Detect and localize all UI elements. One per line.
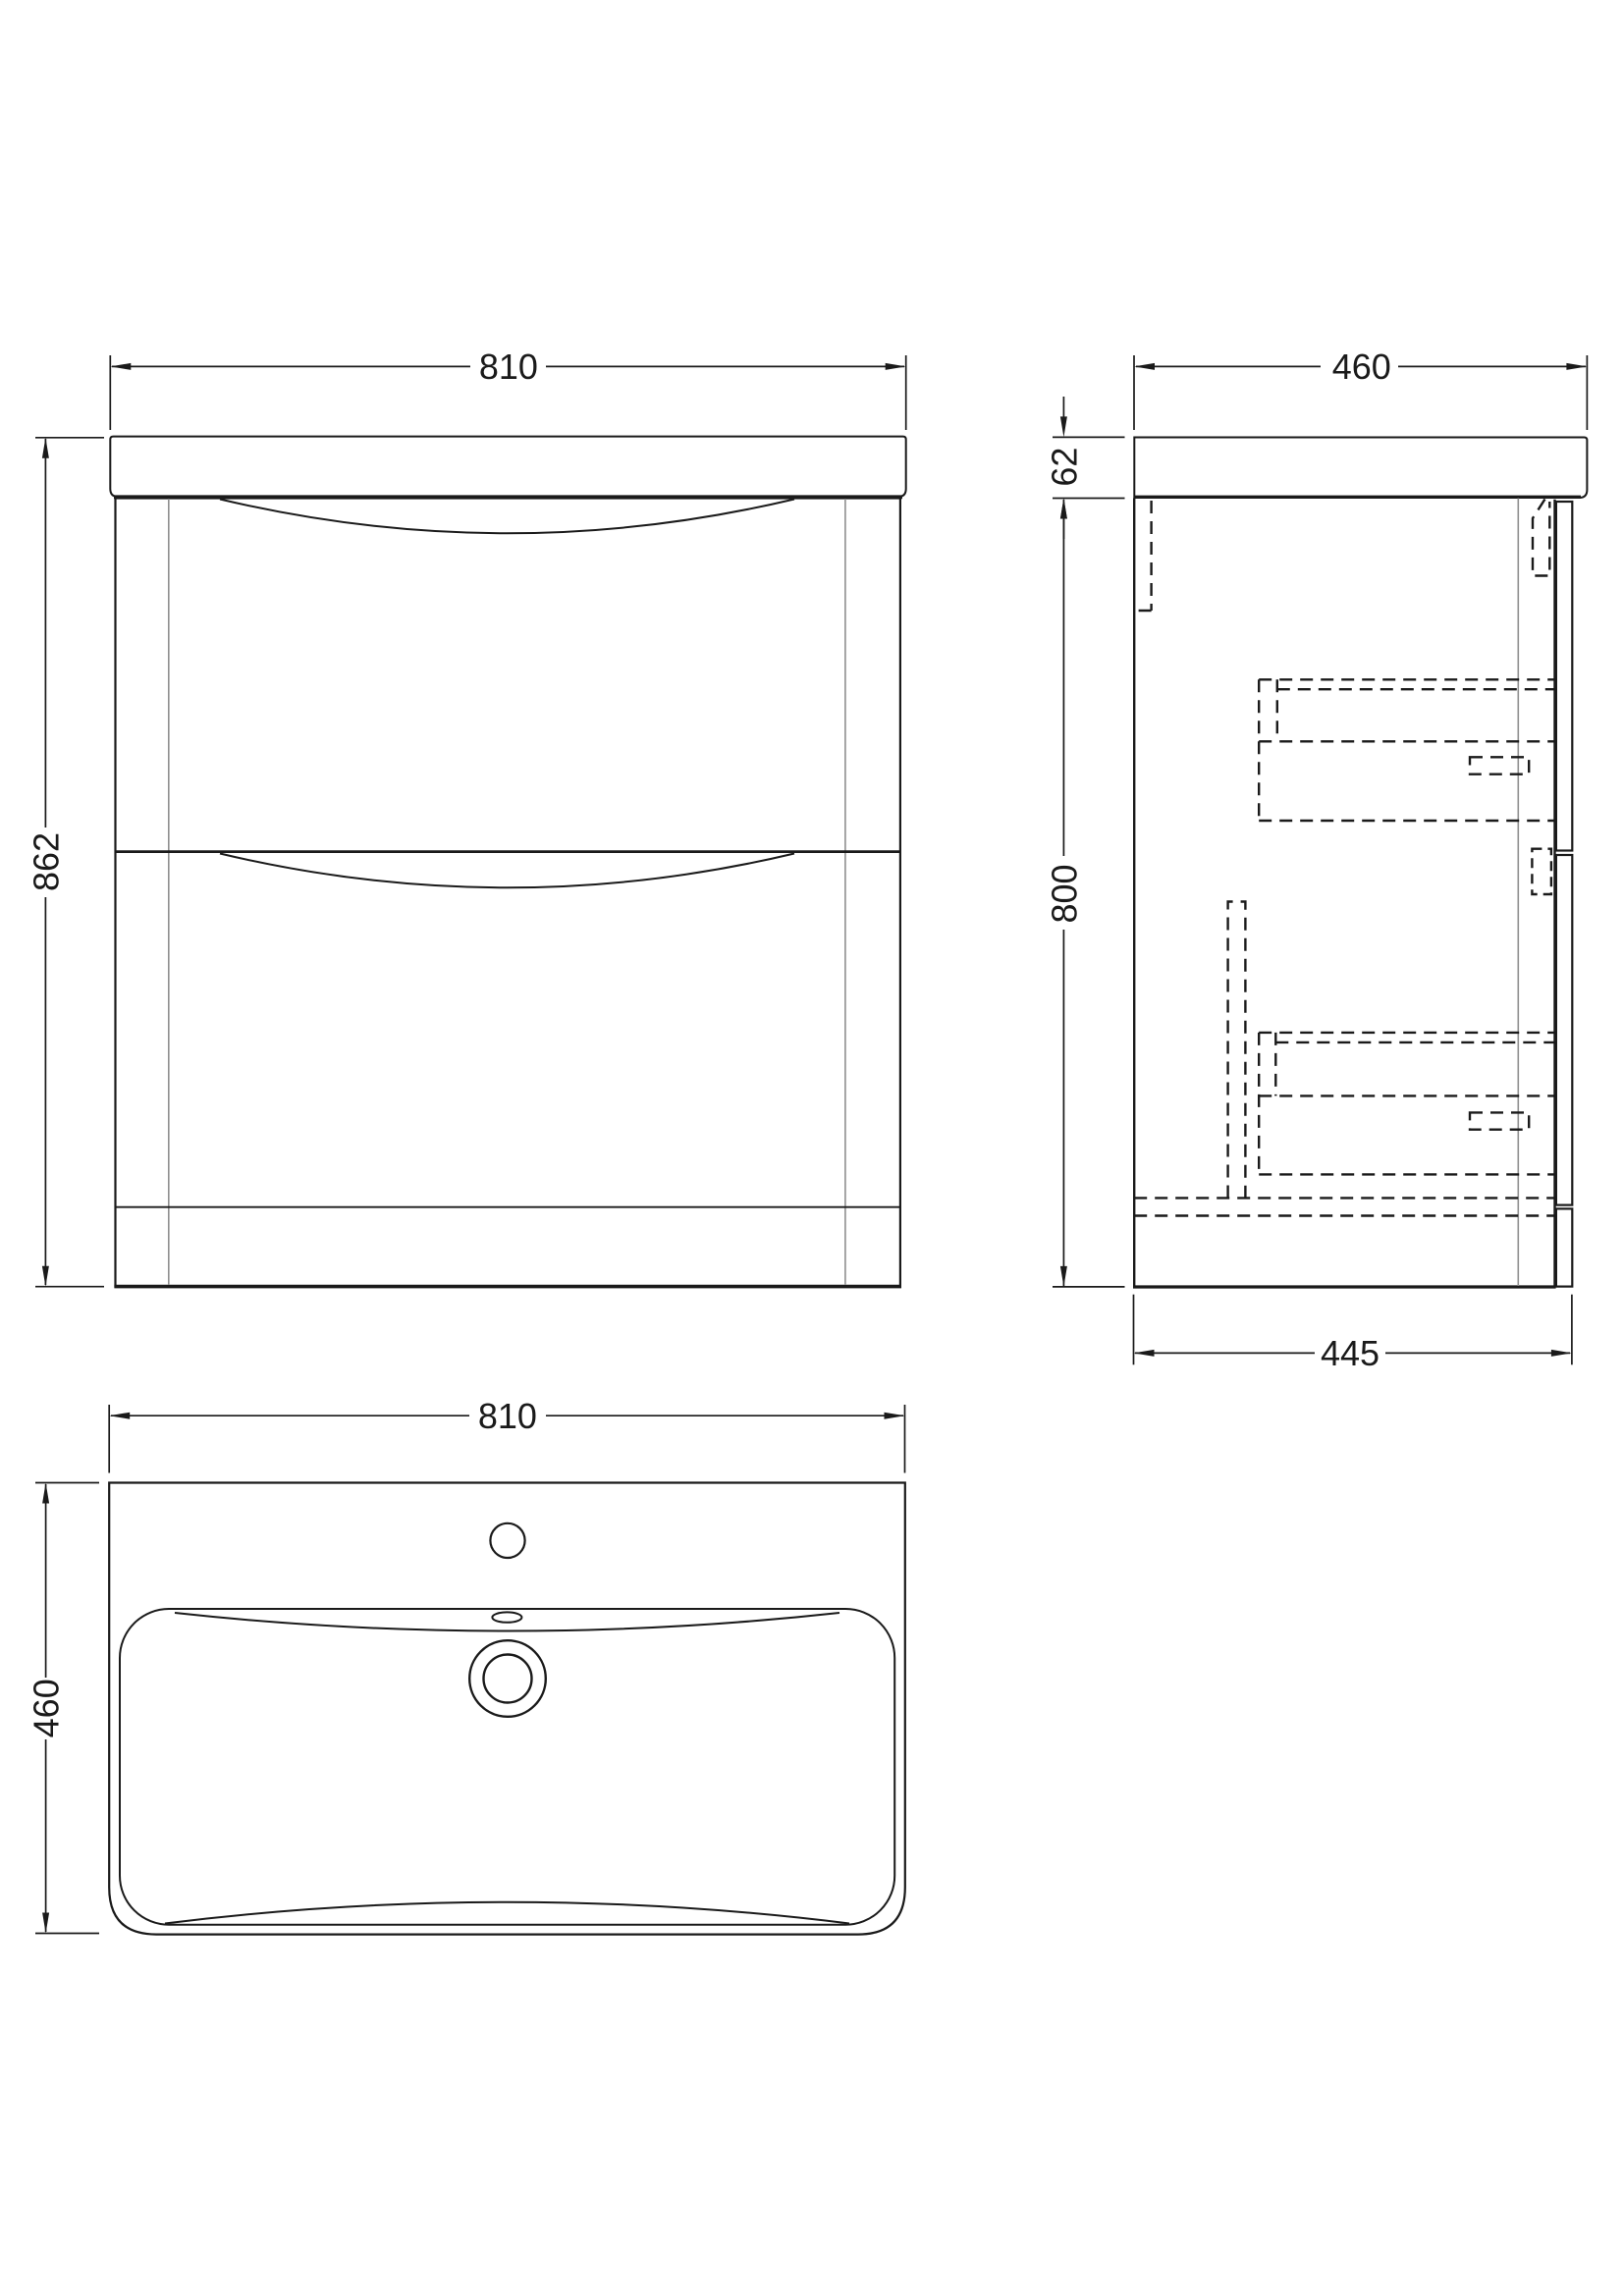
svg-text:810: 810	[478, 1396, 537, 1436]
svg-text:445: 445	[1321, 1333, 1380, 1373]
svg-text:810: 810	[479, 347, 538, 387]
svg-text:862: 862	[26, 832, 66, 891]
svg-text:62: 62	[1045, 448, 1085, 487]
svg-text:800: 800	[1045, 864, 1085, 923]
svg-text:460: 460	[26, 1679, 66, 1737]
svg-text:460: 460	[1332, 347, 1391, 387]
